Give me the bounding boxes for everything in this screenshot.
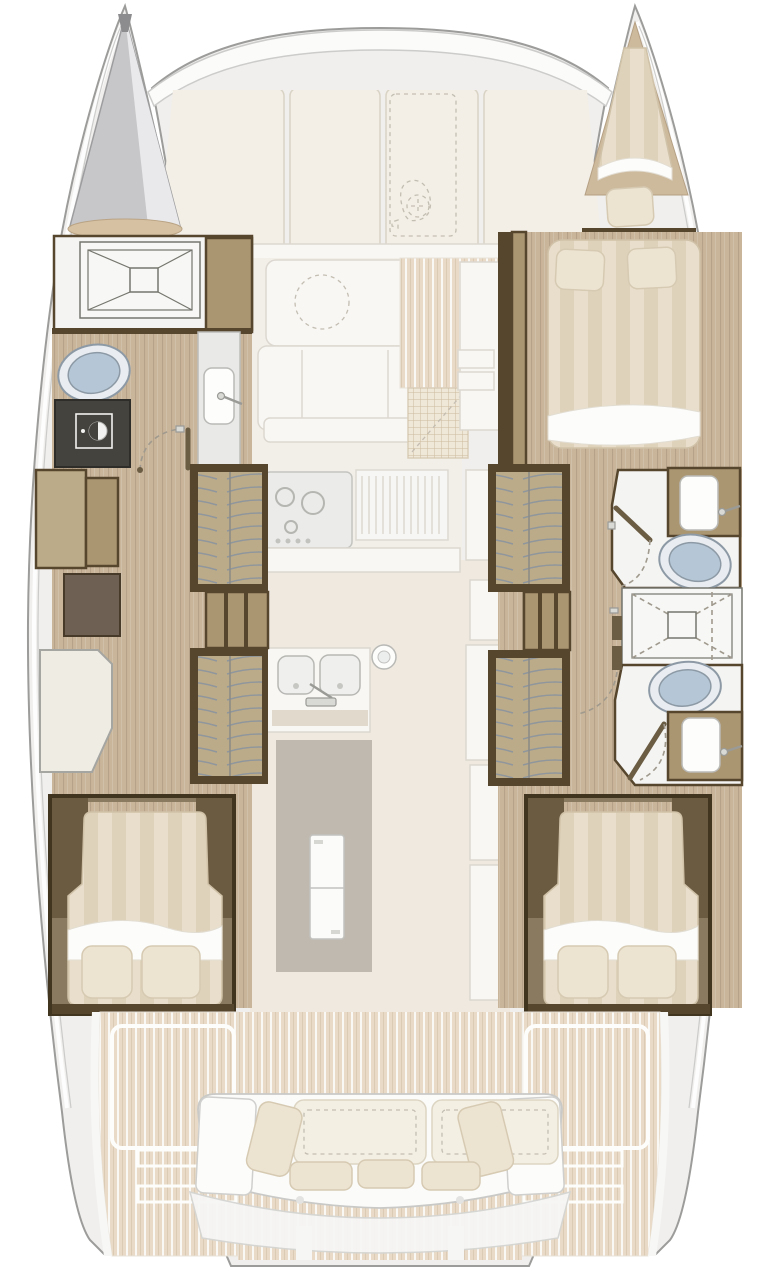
transom-divider [448,1226,464,1260]
cockpit-sofa [196,1094,565,1208]
bathroom-sink [682,718,720,772]
refrigerator-column [276,740,372,972]
transom-divider [296,1226,312,1260]
vanity-column [198,332,242,470]
port-shelf-unit [206,592,268,648]
drainboard [356,470,448,540]
starboard-forward-bed [548,240,700,448]
seat-pillow [290,1162,352,1190]
port-wardrobe-aft [190,648,268,784]
pillow [555,249,605,291]
refrigerator [310,835,344,939]
pillow [82,946,132,998]
trim-panel [512,232,526,470]
door-handle [176,426,184,432]
catamaran-floorplan [0,0,760,1280]
floorplan-canvas [0,0,760,1280]
cockpit [91,1012,670,1260]
pillow [142,946,200,998]
foredeck-panel [386,88,478,252]
starboard-wardrobe-aft [488,650,570,786]
counter-band [258,548,460,572]
port-aft-cabin [50,796,234,1014]
starboard-aft-cabin [526,796,710,1014]
pillow [618,946,676,998]
entry-mat [408,388,468,458]
port-cabinet [36,470,86,568]
galley-sink [266,648,370,732]
foredeck-panel [484,88,604,252]
starboard-shelf-unit [524,592,570,650]
port-cabinet-small [86,478,118,566]
pillow [558,946,608,998]
starboard-bathroom-forward [608,468,740,596]
foredeck-panel [290,88,380,252]
shower-tray [80,242,200,318]
seat-pillow [422,1162,480,1190]
starboard-shower [622,588,742,665]
door-handle [608,522,615,529]
washing-machine [55,400,130,467]
bathroom-sink [680,476,718,530]
stove-unit [264,472,352,548]
trim [498,232,512,472]
seat-pillow [358,1160,414,1188]
faucet-base [306,698,336,706]
port-wardrobe-forward [190,464,268,592]
starboard-bathroom-aft [615,657,742,785]
starboard-wardrobe-forward [488,464,570,592]
cabinet-beside-shower [206,238,252,330]
pillow [627,247,677,289]
port-seat [40,650,112,772]
pillow [606,186,655,227]
port-storage-locker [64,574,120,636]
sofa-side-seat [196,1097,257,1196]
